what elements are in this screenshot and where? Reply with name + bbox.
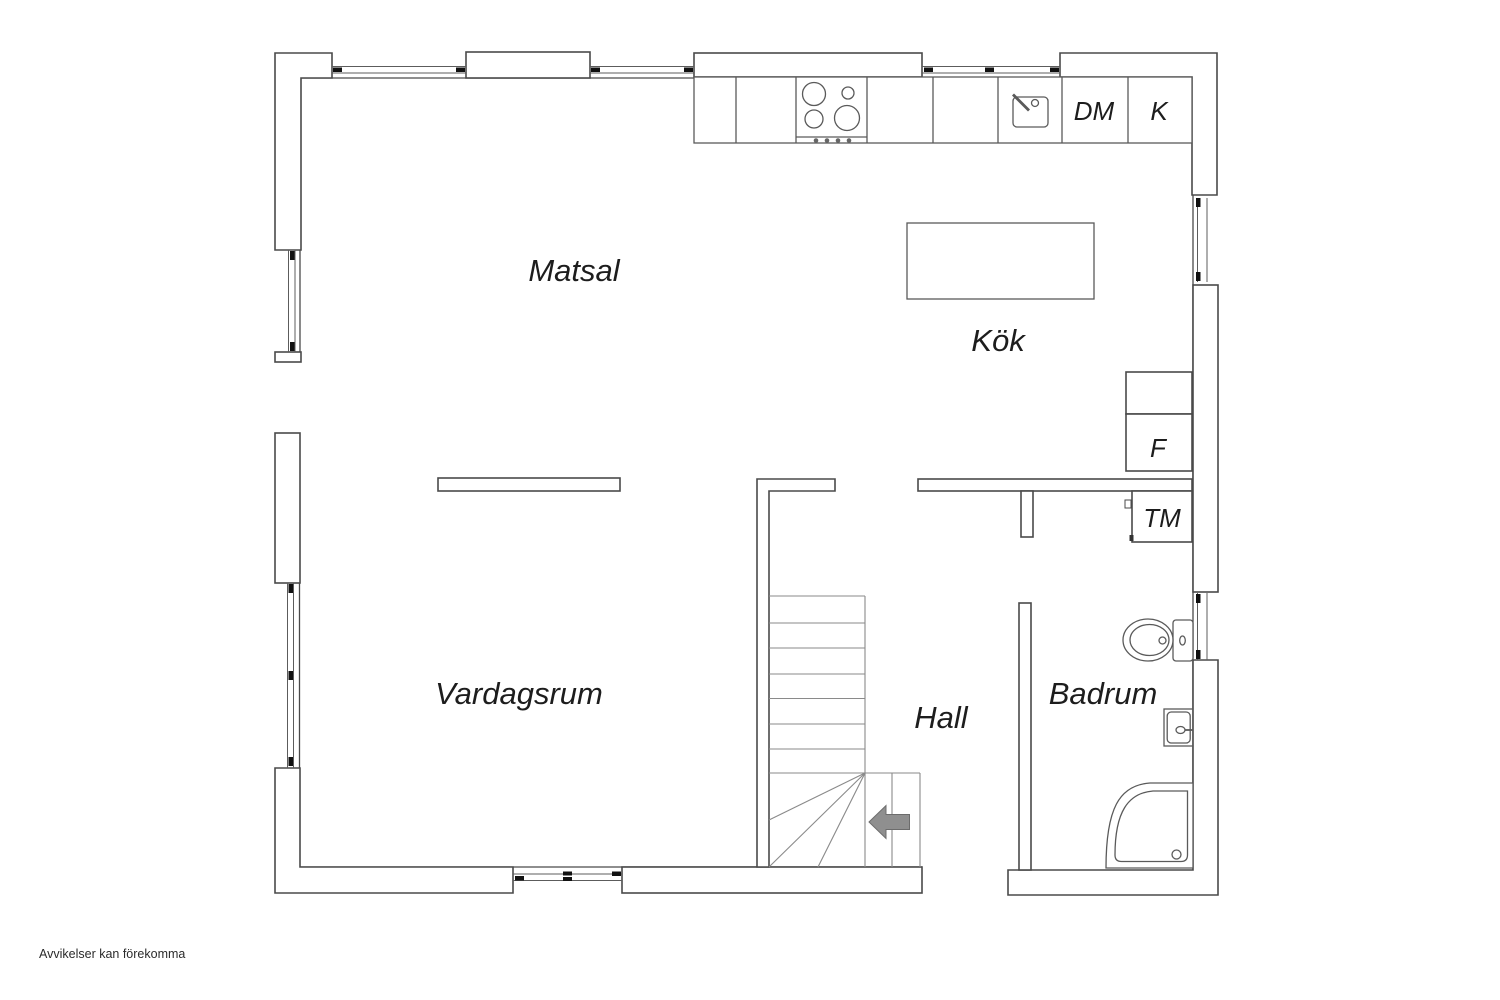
kitchen-counter bbox=[694, 77, 1192, 143]
window-top-1 bbox=[332, 67, 466, 74]
room-label-hall: Hall bbox=[914, 700, 969, 735]
floorplan-page: Matsal Kök Vardagsrum Hall Badrum DM K F… bbox=[0, 0, 1500, 1000]
bathroom-sink-icon bbox=[1164, 709, 1193, 746]
exterior-walls bbox=[275, 52, 1218, 895]
washing-machine-hinge-bottom bbox=[1130, 535, 1134, 541]
wall-bottom-under-stairs bbox=[622, 867, 922, 893]
window-left-lower bbox=[288, 583, 294, 768]
shower-icon bbox=[1106, 783, 1193, 868]
wall-right-middle bbox=[1193, 285, 1218, 592]
wall-bathroom-left bbox=[1019, 603, 1031, 870]
cabinet-box bbox=[1126, 372, 1192, 414]
room-label-badrum: Badrum bbox=[1049, 676, 1158, 711]
toilet-icon bbox=[1123, 619, 1193, 661]
washing-machine-hinge-top bbox=[1125, 500, 1131, 508]
bathroom-fixtures bbox=[1106, 619, 1193, 868]
wall-top-pier bbox=[466, 52, 590, 78]
wall-stair bbox=[757, 479, 835, 867]
stair-direction-arrow-icon bbox=[869, 806, 910, 839]
wall-kitchen-hall-divider bbox=[918, 479, 1192, 491]
wall-bottom-left-corner bbox=[275, 768, 513, 893]
wall-left-foot bbox=[275, 352, 301, 362]
room-label-vardagsrum: Vardagsrum bbox=[435, 676, 603, 711]
appliance-label-washing-machine: TM bbox=[1143, 503, 1181, 533]
appliance-label-freezer: F bbox=[1150, 433, 1168, 463]
wall-livingroom-partition bbox=[438, 478, 620, 491]
room-label-kok: Kök bbox=[971, 323, 1026, 358]
room-label-matsal: Matsal bbox=[528, 253, 620, 288]
disclaimer-text: Avvikelser kan förekomma bbox=[39, 947, 185, 961]
window-top-2 bbox=[590, 67, 694, 74]
window-left-upper bbox=[289, 250, 296, 352]
floorplan-drawing: Matsal Kök Vardagsrum Hall Badrum DM K F… bbox=[0, 0, 1500, 1000]
counter-outline bbox=[694, 77, 1192, 143]
wall-bathroom-door-stub bbox=[1021, 491, 1033, 537]
wall-top-kitchen bbox=[694, 53, 922, 77]
window-right-kitchen bbox=[1196, 198, 1207, 282]
room-labels: Matsal Kök Vardagsrum Hall Badrum bbox=[435, 253, 1157, 735]
window-right-bathroom bbox=[1196, 593, 1207, 660]
window-bottom bbox=[513, 872, 622, 882]
appliance-label-dishwasher: DM bbox=[1074, 96, 1115, 126]
appliance-label-fridge: K bbox=[1150, 96, 1169, 126]
stairs bbox=[769, 596, 920, 867]
window-top-3 bbox=[922, 67, 1060, 74]
kitchen-island bbox=[907, 223, 1094, 299]
wall-top-left-corner bbox=[275, 53, 332, 250]
windows bbox=[288, 67, 1208, 882]
stair-winder-lines bbox=[769, 773, 865, 867]
wall-left-livingroom-upper bbox=[275, 433, 300, 583]
